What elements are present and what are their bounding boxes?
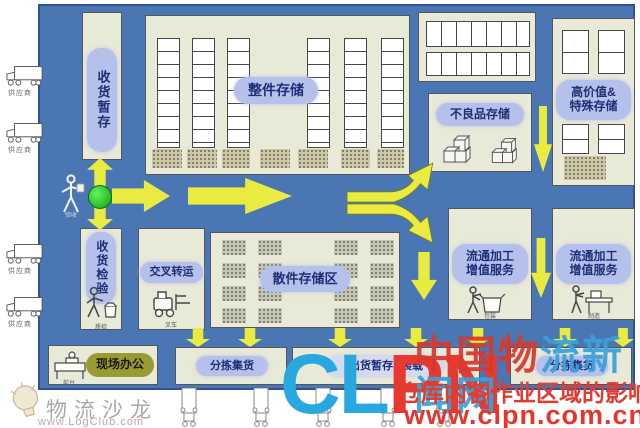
zone-label-value-add-right: 流通加工 增值服务 xyxy=(556,244,631,284)
shelving-cluster xyxy=(258,308,282,323)
pallet-cluster xyxy=(260,149,290,168)
dock-truck-icon xyxy=(178,388,200,428)
shelving-cluster xyxy=(370,286,394,301)
watermark-site-url: www.clpn.com.cn xyxy=(404,402,640,428)
checker-caption: 验收 xyxy=(58,210,84,219)
value-add-line2: 增值服务 xyxy=(569,264,617,278)
zone-label-high-value-line2: 特殊存储 xyxy=(569,100,617,114)
value-add-line1: 流通加工 xyxy=(569,250,617,264)
shelving-cluster xyxy=(370,263,394,278)
storage-locker xyxy=(598,30,625,74)
shelving-cluster xyxy=(334,308,358,323)
shelving-cluster xyxy=(564,156,606,180)
zone-label-loose-storage: 散件存储区 xyxy=(260,266,350,292)
dock-truck-icon xyxy=(250,388,272,428)
storage-locker xyxy=(562,30,589,74)
packing-caption: 包装 xyxy=(476,311,504,320)
supplier-caption: 供应商 xyxy=(8,88,32,98)
checker-person-icon xyxy=(56,174,86,214)
desk-caption: 前台 xyxy=(56,378,82,387)
boxes-icon xyxy=(441,131,481,168)
desk-icon xyxy=(52,350,88,380)
value-add-line1: 流通加工 xyxy=(466,250,514,264)
shelving-cluster xyxy=(222,240,246,255)
shelving-cluster xyxy=(222,263,246,278)
shelving-cluster xyxy=(222,286,246,301)
rack-row xyxy=(426,52,530,76)
assembly-caption: 制造 xyxy=(580,311,608,320)
zone-label-cross-dock: 交叉转运 xyxy=(140,262,203,283)
shelving-cluster xyxy=(222,308,246,323)
rack-column xyxy=(381,38,404,148)
boxes-icon xyxy=(488,134,528,168)
supplier-truck-icon xyxy=(6,242,44,266)
supplier-caption: 供应商 xyxy=(8,266,32,276)
forklift-icon xyxy=(146,290,198,320)
supplier-truck-icon xyxy=(6,121,44,145)
inspector-icon xyxy=(82,286,120,320)
storage-locker xyxy=(598,124,625,154)
watermark-clpn-blue: CL xyxy=(280,337,388,428)
zone-label-defective-storage: 不良品存储 xyxy=(436,103,524,126)
watermark-site-name-red: 中国物 xyxy=(414,334,540,378)
logo-url: www.LogClub.com xyxy=(38,416,144,428)
rack-row xyxy=(426,21,530,47)
rack-column xyxy=(157,38,180,148)
packing-person-icon xyxy=(463,286,507,314)
flow-arrow-fork xyxy=(346,152,446,254)
supplier-caption: 供应商 xyxy=(8,145,32,155)
shelving-cluster xyxy=(258,240,282,255)
warehouse-layout-figure: 收货暂存 整件存储 高价值& 特殊存储 不良品存储 xyxy=(0,0,640,428)
pallet-cluster xyxy=(222,149,250,168)
zone-label-high-value-line1: 高价值& xyxy=(571,86,616,100)
zone-label-value-add-left: 流通加工 增值服务 xyxy=(452,244,528,284)
pallet-cluster xyxy=(152,149,182,168)
value-add-line2: 增值服务 xyxy=(466,264,514,278)
forklift-caption: 叉车 xyxy=(158,320,184,329)
entry-node xyxy=(88,185,112,209)
shelving-cluster xyxy=(370,308,394,323)
zone-label-receiving-staging: 收货暂存 xyxy=(87,48,117,152)
supplier-truck-icon xyxy=(6,295,44,319)
zone-label-office: 现场办公 xyxy=(86,353,154,377)
rack-column xyxy=(344,38,367,148)
pallet-cluster xyxy=(187,149,217,168)
pallet-cluster xyxy=(298,149,328,168)
supplier-truck-icon xyxy=(6,64,44,88)
supplier-caption: 供应商 xyxy=(8,319,32,329)
zone-label-full-case-storage: 整件存储 xyxy=(234,77,318,104)
storage-locker xyxy=(562,124,589,154)
workbench-person-icon xyxy=(567,284,615,314)
zone-label-sort-left: 分拣集货 xyxy=(196,356,268,376)
inspector-caption: 质检 xyxy=(88,322,114,331)
rack-column xyxy=(192,38,215,148)
zone-label-high-value: 高价值& 特殊存储 xyxy=(556,80,631,120)
